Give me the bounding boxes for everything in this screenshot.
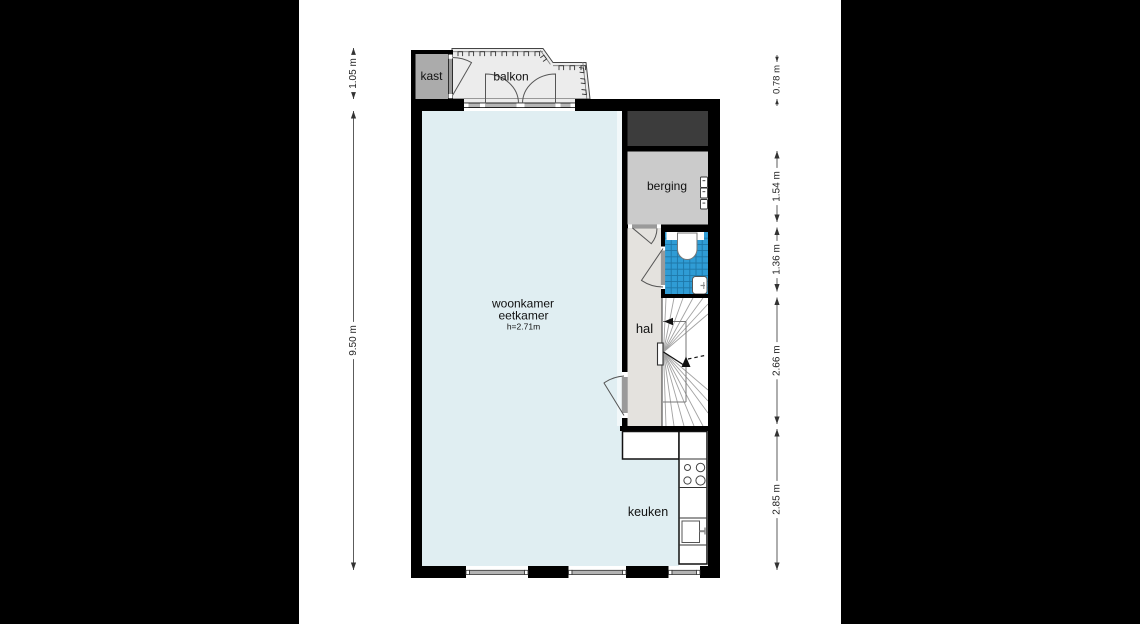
svg-text:berging: berging xyxy=(647,179,687,193)
svg-text:9.50 m: 9.50 m xyxy=(348,325,359,356)
svg-text:2.66 m: 2.66 m xyxy=(772,345,783,376)
svg-text:hal: hal xyxy=(636,321,653,336)
svg-text:1.05 m: 1.05 m xyxy=(348,58,359,89)
svg-text:balkon: balkon xyxy=(493,70,528,84)
svg-text:0.78 m: 0.78 m xyxy=(772,65,783,94)
svg-text:1.54 m: 1.54 m xyxy=(772,171,783,202)
svg-text:1.36 m: 1.36 m xyxy=(772,244,783,275)
svg-text:keuken: keuken xyxy=(628,505,668,519)
svg-text:2.85 m: 2.85 m xyxy=(772,484,783,515)
svg-text:kast: kast xyxy=(420,69,443,83)
svg-text:eetkamer: eetkamer xyxy=(498,309,548,323)
svg-text:h=2.71m: h=2.71m xyxy=(507,322,540,332)
